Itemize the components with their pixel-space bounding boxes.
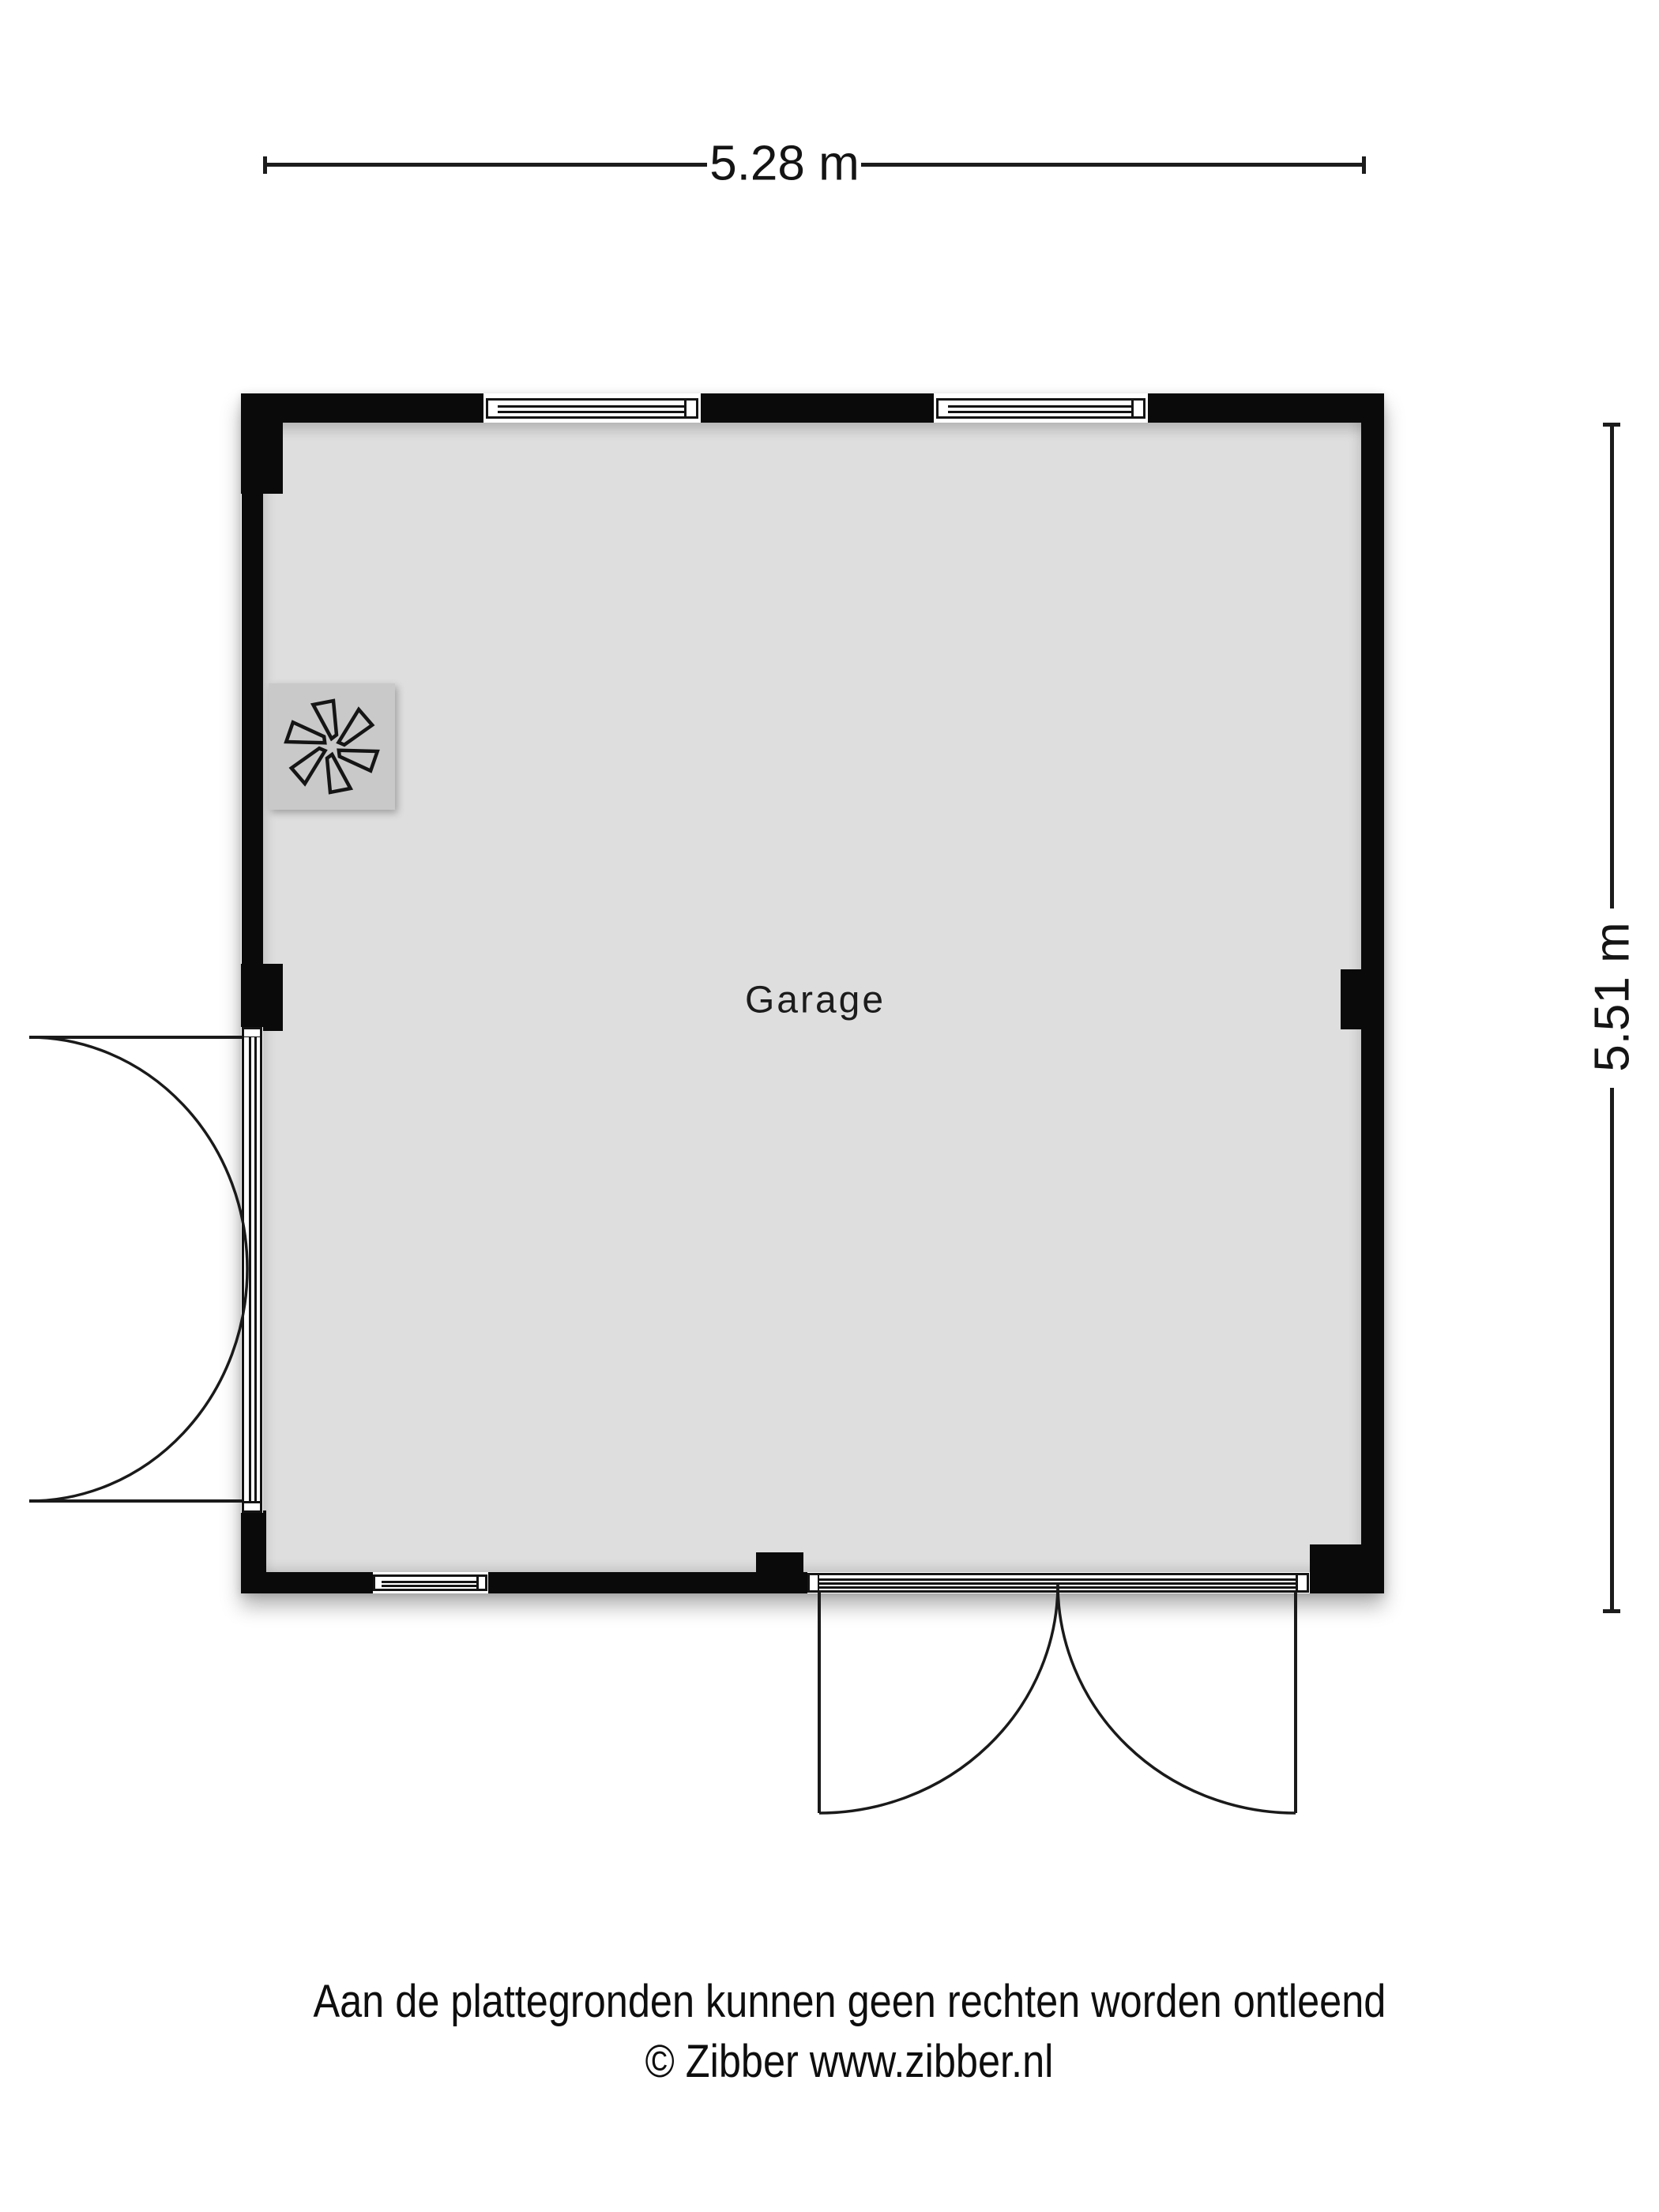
window-glazing [498, 398, 687, 419]
window-post [1131, 398, 1145, 419]
footer-copyright: © Zibber www.zibber.nl [645, 2032, 1054, 2092]
top-dimension-line-right [861, 163, 1364, 167]
window-bottom [373, 1572, 488, 1593]
door-frame-left [241, 1027, 263, 1513]
door-swing-arc [29, 1037, 247, 1269]
wall-bottom-pier [756, 1552, 803, 1574]
window-glazing [382, 1574, 478, 1591]
door-swing-arc [1058, 1584, 1296, 1813]
footer-disclaimer: Aan de plattegronden kunnen geen rechten… [313, 1972, 1386, 2032]
window-top-right [934, 393, 1148, 423]
width-dimension-label: 5.28 m [709, 136, 860, 192]
right-dimension-line-top [1610, 427, 1614, 908]
wall-top-segment-3 [1148, 393, 1384, 423]
wall-left-mid-pier [241, 964, 283, 1031]
door-threshold [819, 1573, 1296, 1593]
top-dimension-tick-right [1362, 156, 1366, 174]
door-swing-arc [29, 1269, 247, 1501]
door-frame-post [1296, 1573, 1309, 1593]
door-threshold [242, 1037, 262, 1503]
window-top-left [483, 393, 701, 423]
footer: Aan de plattegronden kunnen geen rechten… [0, 1972, 1659, 2092]
right-dimension-line-bottom [1610, 1088, 1614, 1609]
door-frame-bottom [807, 1572, 1310, 1593]
top-dimension-line-left [265, 163, 707, 167]
wall-right-mid-pier [1341, 969, 1364, 1029]
room-label: Garage [745, 979, 886, 1022]
window-post [476, 1574, 487, 1591]
wall-corner-bottom-left [241, 1510, 266, 1593]
height-dimension-label: 5.51 m [1585, 922, 1641, 1072]
door-frame-post [242, 1501, 262, 1513]
floorplan-page: 5.28 m 5.51 m [0, 0, 1659, 2212]
wall-bottom-segment-2 [488, 1572, 807, 1593]
window-glazing [948, 398, 1134, 419]
door-swing-arc [819, 1584, 1058, 1813]
wall-bottom-segment-1 [266, 1572, 373, 1593]
fan-icon [269, 683, 395, 810]
door-frame-post [807, 1573, 820, 1593]
right-dimension-tick-bottom [1603, 1609, 1620, 1613]
wall-left-upper [242, 423, 263, 968]
wall-right [1361, 393, 1384, 1593]
wall-top-segment-2 [701, 393, 934, 423]
wall-top-segment-1 [241, 393, 483, 423]
window-post [684, 398, 698, 419]
